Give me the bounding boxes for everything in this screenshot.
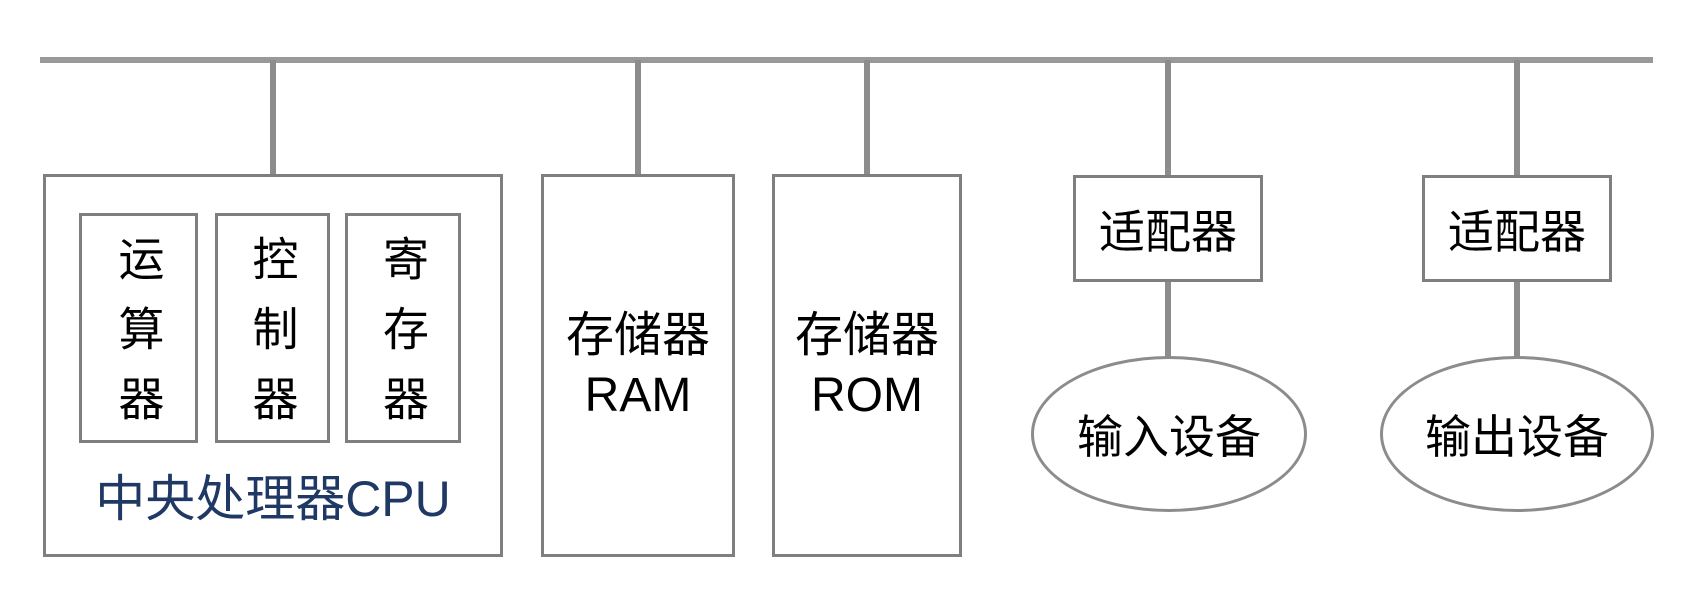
connector-bus-output-adapter — [1514, 60, 1520, 175]
bus-line — [40, 57, 1653, 63]
ram-label-line1: 存储器 — [566, 306, 710, 366]
register-label: 寄存器 — [370, 235, 436, 445]
output-device-ellipse: 输出设备 — [1380, 356, 1654, 512]
input-device-ellipse: 输入设备 — [1031, 356, 1307, 512]
rom-box: 存储器 ROM — [772, 174, 962, 557]
connector-bus-input-adapter — [1165, 60, 1171, 175]
input-adapter-box: 适配器 — [1073, 175, 1263, 282]
ram-label-line2: RAM — [566, 366, 710, 426]
connector-bus-rom — [864, 60, 870, 174]
connector-input-adapter-device — [1165, 280, 1171, 358]
ram-label: 存储器 RAM — [566, 306, 710, 426]
connector-bus-cpu — [270, 60, 276, 174]
alu-box: 运算器 — [79, 213, 198, 443]
rom-label-line1: 存储器 — [795, 306, 939, 366]
connector-bus-ram — [635, 60, 641, 174]
output-device-label: 输出设备 — [1425, 401, 1609, 467]
rom-label: 存储器 ROM — [795, 306, 939, 426]
cpu-label: 中央处理器CPU — [46, 471, 500, 527]
connector-output-adapter-device — [1514, 280, 1520, 358]
rom-label-line2: ROM — [795, 366, 939, 426]
output-adapter-box: 适配器 — [1422, 175, 1612, 282]
input-device-label: 输入设备 — [1077, 401, 1261, 467]
cpu-box: 运算器 控制器 寄存器 中央处理器CPU — [43, 174, 503, 557]
input-adapter-label: 适配器 — [1099, 196, 1237, 262]
register-box: 寄存器 — [345, 213, 461, 443]
output-adapter-label: 适配器 — [1448, 196, 1586, 262]
architecture-diagram: 运算器 控制器 寄存器 中央处理器CPU 存储器 RAM 存储器 ROM 适配器… — [0, 0, 1691, 596]
control-unit-box: 控制器 — [215, 213, 330, 443]
ram-box: 存储器 RAM — [541, 174, 735, 557]
control-unit-label: 控制器 — [240, 235, 306, 445]
alu-label: 运算器 — [106, 235, 172, 445]
